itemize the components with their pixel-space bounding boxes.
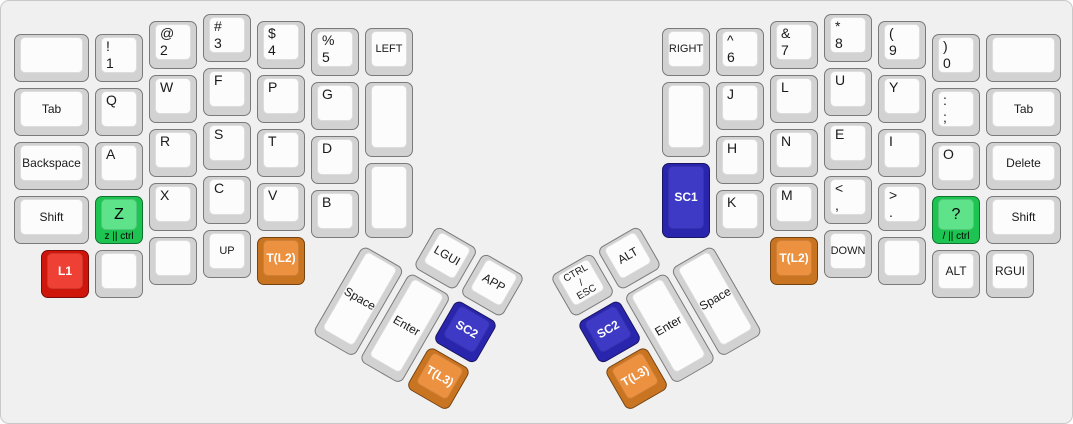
key-label: CTRL / ESC bbox=[558, 259, 604, 305]
key-label: T(L3) bbox=[417, 352, 463, 398]
key-label: ? bbox=[939, 200, 973, 229]
keycap-top: D bbox=[317, 139, 353, 175]
keycap-top bbox=[101, 253, 137, 289]
keycap-top: ^6 bbox=[722, 31, 758, 67]
keycap-top: @2 bbox=[155, 24, 191, 60]
key-label: M bbox=[781, 187, 793, 203]
keycap-top bbox=[155, 240, 191, 276]
key-label: Delete bbox=[993, 146, 1054, 180]
keycap-top: Z bbox=[101, 199, 137, 230]
key-tab-left[interactable]: Tab bbox=[14, 88, 89, 136]
key-label: B bbox=[322, 194, 331, 210]
keycap-top: !1 bbox=[101, 37, 137, 73]
key-caret-6[interactable]: ^6 bbox=[716, 28, 764, 76]
key-o[interactable]: O bbox=[932, 142, 980, 190]
key-blank-right-inner-1[interactable] bbox=[662, 82, 710, 157]
key-g[interactable]: G bbox=[311, 82, 359, 130]
keycap-top: T(L2) bbox=[776, 240, 812, 276]
key-j[interactable]: J bbox=[716, 82, 764, 130]
key-t[interactable]: T bbox=[257, 129, 305, 177]
key-label: APP bbox=[471, 259, 517, 305]
key-label: # bbox=[214, 18, 222, 34]
keycap-top: C bbox=[209, 179, 245, 215]
keycap-top: (9 bbox=[884, 24, 920, 60]
keycap-top: X bbox=[155, 186, 191, 222]
key-sublabel: 2 bbox=[160, 42, 168, 58]
key-label: Backspace bbox=[21, 146, 82, 180]
key-sublabel: 6 bbox=[727, 49, 735, 65]
key-label: L1 bbox=[48, 254, 82, 288]
keycap-top: Tab bbox=[992, 91, 1055, 127]
key-sublabel: 3 bbox=[214, 35, 222, 51]
keycap-top: Delete bbox=[992, 145, 1055, 181]
keycap-top: :; bbox=[938, 91, 974, 127]
keycap-top: APP bbox=[469, 257, 518, 306]
keycap-top: T bbox=[263, 132, 299, 168]
keycap-top: A bbox=[101, 145, 137, 181]
key-label: @ bbox=[160, 25, 174, 41]
key-d[interactable]: D bbox=[311, 136, 359, 184]
key-label: U bbox=[835, 72, 845, 88]
keycap-top bbox=[20, 37, 83, 73]
key-label: H bbox=[727, 140, 737, 156]
key-label: E bbox=[835, 126, 844, 142]
key-rparen-0[interactable]: )0 bbox=[932, 34, 980, 82]
key-label: $ bbox=[268, 25, 276, 41]
key-down-arrow[interactable]: DOWN bbox=[824, 230, 872, 278]
key-label: SC2 bbox=[585, 306, 631, 352]
key-hash-3[interactable]: #3 bbox=[203, 14, 251, 62]
key-blank-left-bottom-2[interactable] bbox=[149, 237, 197, 285]
keycap-top: )0 bbox=[938, 37, 974, 73]
keycap-top: Backspace bbox=[20, 145, 83, 181]
keycap-top: N bbox=[776, 132, 812, 168]
key-label: D bbox=[322, 140, 332, 156]
key-front-label: / || ctrl bbox=[933, 231, 979, 243]
keycap-top: V bbox=[263, 186, 299, 222]
key-blank-right-bottom-1[interactable] bbox=[878, 237, 926, 285]
keycap-top: Shift bbox=[992, 199, 1055, 235]
keycap-top: S bbox=[209, 125, 245, 161]
keycap-top bbox=[371, 85, 407, 148]
key-z-ctrl[interactable]: Zz || ctrl bbox=[95, 196, 143, 244]
key-question-ctrl[interactable]: ?/ || ctrl bbox=[932, 196, 980, 244]
key-v[interactable]: V bbox=[257, 183, 305, 231]
key-label: T(L3) bbox=[612, 352, 658, 398]
keycap-top: LEFT bbox=[371, 31, 407, 67]
keycap-top: ALT bbox=[603, 230, 652, 279]
key-up-arrow[interactable]: UP bbox=[203, 230, 251, 278]
key-shift-right[interactable]: Shift bbox=[986, 196, 1061, 244]
keycap-top: SC1 bbox=[668, 166, 704, 229]
keycap-top: &7 bbox=[776, 24, 812, 60]
key-label: ) bbox=[943, 38, 948, 54]
keycap-top: RGUI bbox=[992, 253, 1028, 289]
key-i[interactable]: I bbox=[878, 129, 926, 177]
keycap-top: L bbox=[776, 78, 812, 114]
keycap-top: J bbox=[722, 85, 758, 121]
keycap-top: H bbox=[722, 139, 758, 175]
key-n[interactable]: N bbox=[770, 129, 818, 177]
key-label: Z bbox=[102, 200, 136, 229]
key-r[interactable]: R bbox=[149, 129, 197, 177]
key-star-8[interactable]: *8 bbox=[824, 14, 872, 62]
keycap-top: SC2 bbox=[583, 304, 632, 353]
key-front-label: z || ctrl bbox=[96, 231, 142, 243]
key-sublabel: 7 bbox=[781, 42, 789, 58]
key-dollar-4[interactable]: $4 bbox=[257, 21, 305, 69]
keycap-top: UP bbox=[209, 233, 245, 269]
key-tab-right[interactable]: Tab bbox=[986, 88, 1061, 136]
key-label: P bbox=[268, 79, 277, 95]
key-label: T(L2) bbox=[264, 241, 298, 275]
key-c[interactable]: C bbox=[203, 176, 251, 224]
key-label: I bbox=[889, 133, 893, 149]
keycap-top: G bbox=[317, 85, 353, 121]
key-sc1[interactable]: SC1 bbox=[662, 163, 710, 238]
key-label: ALT bbox=[939, 254, 973, 288]
keycap-top: T(L3) bbox=[610, 351, 659, 400]
key-amp-7[interactable]: &7 bbox=[770, 21, 818, 69]
key-label: Shift bbox=[993, 200, 1054, 234]
key-label: V bbox=[268, 187, 277, 203]
key-u[interactable]: U bbox=[824, 68, 872, 116]
keycap-top: LGUI bbox=[423, 230, 472, 279]
keycap-top: Y bbox=[884, 78, 920, 114]
keycap-top: R bbox=[155, 132, 191, 168]
key-e[interactable]: E bbox=[824, 122, 872, 170]
keycap-top bbox=[371, 166, 407, 229]
key-lparen-9[interactable]: (9 bbox=[878, 21, 926, 69]
key-exclam-1[interactable]: !1 bbox=[95, 34, 143, 82]
key-label: RGUI bbox=[993, 254, 1027, 288]
keycap-top: #3 bbox=[209, 17, 245, 53]
key-l1-layer[interactable]: L1 bbox=[41, 250, 89, 298]
keycap-top: DOWN bbox=[830, 233, 866, 269]
key-blank-left-bottom-1[interactable] bbox=[95, 250, 143, 298]
key-label: Tab bbox=[21, 92, 82, 126]
key-label: & bbox=[781, 25, 790, 41]
keycap-top: T(L3) bbox=[415, 351, 464, 400]
key-label: W bbox=[160, 79, 173, 95]
key-label: SC1 bbox=[669, 167, 703, 228]
key-label: RIGHT bbox=[669, 32, 703, 66]
key-sublabel: 5 bbox=[322, 49, 330, 65]
keycap-top: RIGHT bbox=[668, 31, 704, 67]
key-alt-right[interactable]: ALT bbox=[932, 250, 980, 298]
keycap-top bbox=[668, 85, 704, 148]
key-label: G bbox=[322, 86, 333, 102]
key-blank-top-left[interactable] bbox=[14, 34, 89, 82]
key-s[interactable]: S bbox=[203, 122, 251, 170]
keycap-top: *8 bbox=[830, 17, 866, 53]
key-m[interactable]: M bbox=[770, 183, 818, 231]
key-label: J bbox=[727, 86, 734, 102]
key-label: < bbox=[835, 180, 843, 196]
key-sublabel: 1 bbox=[106, 55, 114, 71]
key-label: S bbox=[214, 126, 223, 142]
key-label: T bbox=[268, 133, 277, 149]
key-blank-top-right[interactable] bbox=[986, 34, 1061, 82]
key-label: T(L2) bbox=[777, 241, 811, 275]
key-w[interactable]: W bbox=[149, 75, 197, 123]
keycap-top: ? bbox=[938, 199, 974, 230]
keycap-top: F bbox=[209, 71, 245, 107]
key-label: C bbox=[214, 180, 224, 196]
keyboard-panel: TabBackspaceShiftL1!1QAZz || ctrl@2WRX#3… bbox=[0, 0, 1073, 424]
key-gt-period[interactable]: >. bbox=[878, 183, 926, 231]
keycap-top: T(L2) bbox=[263, 240, 299, 276]
key-sublabel: 4 bbox=[268, 42, 276, 58]
key-backspace[interactable]: Backspace bbox=[14, 142, 89, 190]
key-left-arrow[interactable]: LEFT bbox=[365, 28, 413, 76]
key-label: ^ bbox=[727, 32, 734, 48]
keycap-top: E bbox=[830, 125, 866, 161]
key-at-2[interactable]: @2 bbox=[149, 21, 197, 69]
key-y[interactable]: Y bbox=[878, 75, 926, 123]
key-label: K bbox=[727, 194, 736, 210]
keycap-top: M bbox=[776, 186, 812, 222]
key-delete[interactable]: Delete bbox=[986, 142, 1061, 190]
key-blank-left-inner-2[interactable] bbox=[365, 163, 413, 238]
keycap-top: P bbox=[263, 78, 299, 114]
key-f[interactable]: F bbox=[203, 68, 251, 116]
keycap-top: %5 bbox=[317, 31, 353, 67]
key-h[interactable]: H bbox=[716, 136, 764, 184]
key-label: UP bbox=[210, 234, 244, 268]
key-label: % bbox=[322, 32, 334, 48]
key-p[interactable]: P bbox=[257, 75, 305, 123]
key-label: X bbox=[160, 187, 169, 203]
keycap-top: L1 bbox=[47, 253, 83, 289]
key-percent-5[interactable]: %5 bbox=[311, 28, 359, 76]
key-label: O bbox=[943, 146, 954, 162]
keycap-top: SC2 bbox=[442, 304, 491, 353]
key-l[interactable]: L bbox=[770, 75, 818, 123]
keycap-top bbox=[884, 240, 920, 276]
key-label: ! bbox=[106, 38, 110, 54]
key-sublabel: 0 bbox=[943, 55, 951, 71]
key-rgui[interactable]: RGUI bbox=[986, 250, 1034, 298]
key-label: Q bbox=[106, 92, 117, 108]
key-shift-left[interactable]: Shift bbox=[14, 196, 89, 244]
key-label: DOWN bbox=[831, 234, 865, 268]
key-k[interactable]: K bbox=[716, 190, 764, 238]
key-sublabel: 8 bbox=[835, 35, 843, 51]
key-lt-comma[interactable]: <, bbox=[824, 176, 872, 224]
key-label: ALT bbox=[605, 232, 651, 278]
key-t-l2-left[interactable]: T(L2) bbox=[257, 237, 305, 285]
key-label: Tab bbox=[993, 92, 1054, 126]
key-label: L bbox=[781, 79, 789, 95]
key-label: F bbox=[214, 72, 223, 88]
key-label: LEFT bbox=[372, 32, 406, 66]
keycap-top bbox=[992, 37, 1055, 73]
key-label: SC2 bbox=[444, 306, 490, 352]
key-sublabel: 9 bbox=[889, 42, 897, 58]
keycap-top: U bbox=[830, 71, 866, 107]
key-q[interactable]: Q bbox=[95, 88, 143, 136]
key-label: ( bbox=[889, 25, 894, 41]
keycap-top: Tab bbox=[20, 91, 83, 127]
keycap-top: CTRL / ESC bbox=[556, 257, 605, 306]
key-label: R bbox=[160, 133, 170, 149]
key-sublabel: ; bbox=[943, 109, 947, 125]
key-right-arrow[interactable]: RIGHT bbox=[662, 28, 710, 76]
key-label: * bbox=[835, 18, 840, 34]
key-a[interactable]: A bbox=[95, 142, 143, 190]
keycap-top: W bbox=[155, 78, 191, 114]
key-sublabel: . bbox=[889, 204, 893, 220]
key-sublabel: , bbox=[835, 197, 839, 213]
keycap-top: >. bbox=[884, 186, 920, 222]
key-label: : bbox=[943, 92, 947, 108]
keycap-top: B bbox=[317, 193, 353, 229]
keycap-top: Shift bbox=[20, 199, 83, 235]
keycap-top: Q bbox=[101, 91, 137, 127]
keycap-top: K bbox=[722, 193, 758, 229]
key-label: N bbox=[781, 133, 791, 149]
key-colon-semicolon[interactable]: :; bbox=[932, 88, 980, 136]
key-b[interactable]: B bbox=[311, 190, 359, 238]
key-blank-left-inner-1[interactable] bbox=[365, 82, 413, 157]
key-t-l2-right[interactable]: T(L2) bbox=[770, 237, 818, 285]
key-label: Y bbox=[889, 79, 898, 95]
key-label: LGUI bbox=[424, 232, 470, 278]
keycap-top: $4 bbox=[263, 24, 299, 60]
key-label: > bbox=[889, 187, 897, 203]
keycap-top: O bbox=[938, 145, 974, 181]
key-x[interactable]: X bbox=[149, 183, 197, 231]
key-label: Shift bbox=[21, 200, 82, 234]
key-label: A bbox=[106, 146, 115, 162]
keycap-top: ALT bbox=[938, 253, 974, 289]
keycap-top: <, bbox=[830, 179, 866, 215]
keycap-top: I bbox=[884, 132, 920, 168]
